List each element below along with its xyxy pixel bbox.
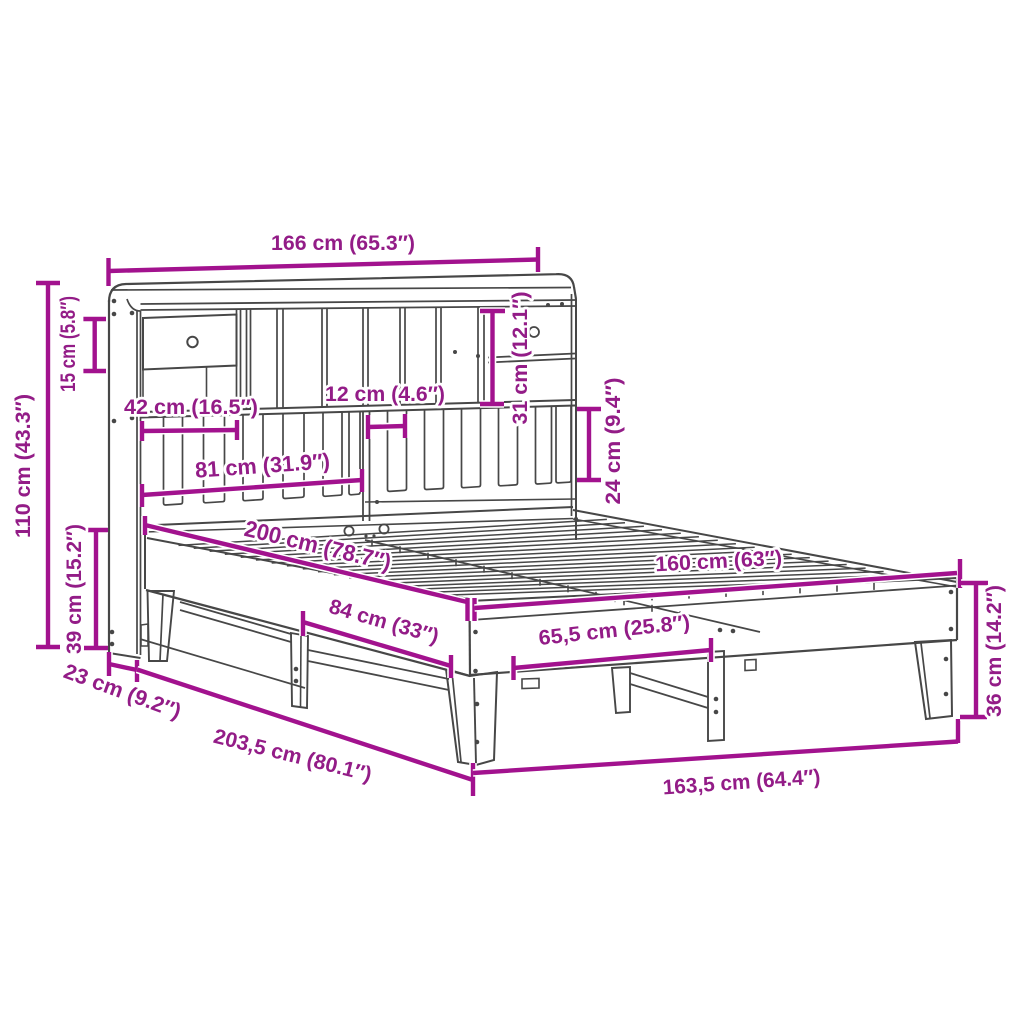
svg-text:36 cm (14.2″): 36 cm (14.2″)	[982, 585, 1006, 717]
svg-text:31 cm (12.1″): 31 cm (12.1″)	[509, 292, 532, 425]
svg-text:110 cm (43.3″): 110 cm (43.3″)	[11, 394, 35, 538]
svg-text:12 cm (4.6″): 12 cm (4.6″)	[325, 383, 445, 406]
svg-text:24 cm (9.4″): 24 cm (9.4″)	[602, 378, 625, 505]
svg-text:39 cm (15.2″): 39 cm (15.2″)	[62, 524, 86, 654]
svg-text:42 cm (16.5″): 42 cm (16.5″)	[124, 396, 258, 419]
svg-text:15 cm (5.8″): 15 cm (5.8″)	[57, 296, 80, 392]
svg-text:166 cm (65.3″): 166 cm (65.3″)	[271, 231, 415, 255]
